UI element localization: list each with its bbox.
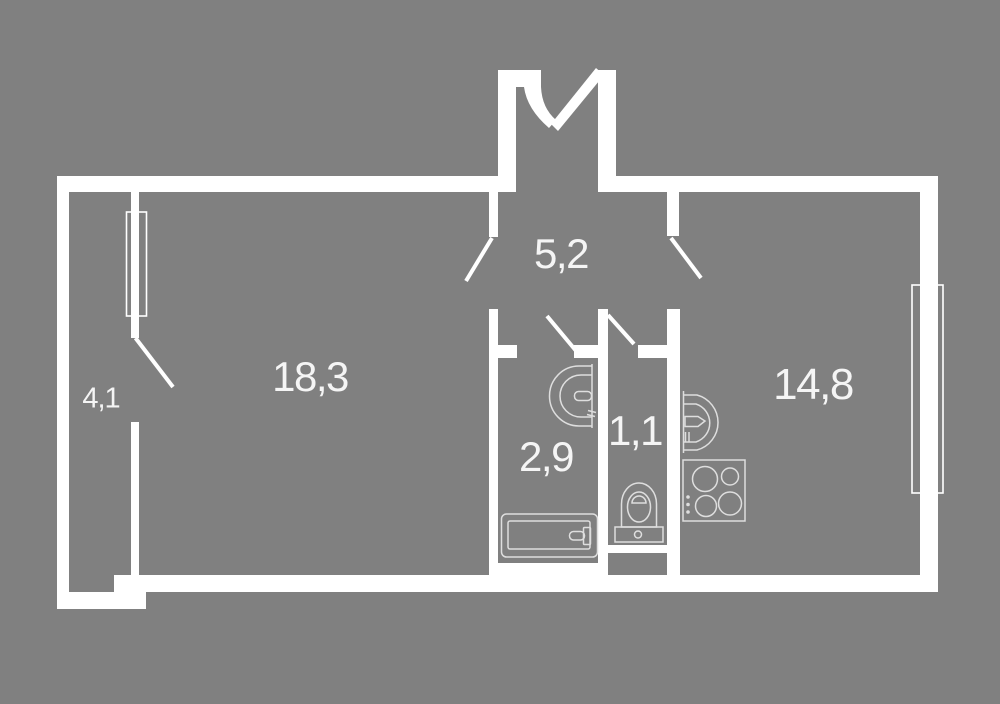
entrance-door [524, 68, 604, 131]
door-swing-hallway-small [136, 338, 174, 387]
floor-plan: 4,1 18,3 5,2 2,9 1,1 14,8 [0, 0, 1000, 704]
window-left [127, 212, 147, 316]
door-swing-bathroom [547, 316, 577, 352]
room-label-bathroom: 2,9 [519, 436, 573, 478]
fixtures-layer [0, 0, 1000, 704]
room-label-kitchen: 14,8 [773, 363, 853, 407]
kitchen-sink [684, 391, 719, 453]
door-swing-living-room [466, 238, 492, 281]
room-label-hallway-small: 4,1 [82, 385, 119, 414]
room-label-entrance-hall: 5,2 [534, 233, 588, 275]
room-label-wc: 1,1 [608, 410, 662, 452]
toilet [615, 483, 663, 542]
bathroom-sink [550, 364, 597, 428]
bathtub [502, 514, 598, 557]
room-label-living-room: 18,3 [272, 356, 348, 398]
door-swing-kitchen [671, 238, 701, 278]
stove [683, 460, 745, 521]
window-right [912, 285, 943, 493]
door-swing-wc [608, 315, 634, 344]
